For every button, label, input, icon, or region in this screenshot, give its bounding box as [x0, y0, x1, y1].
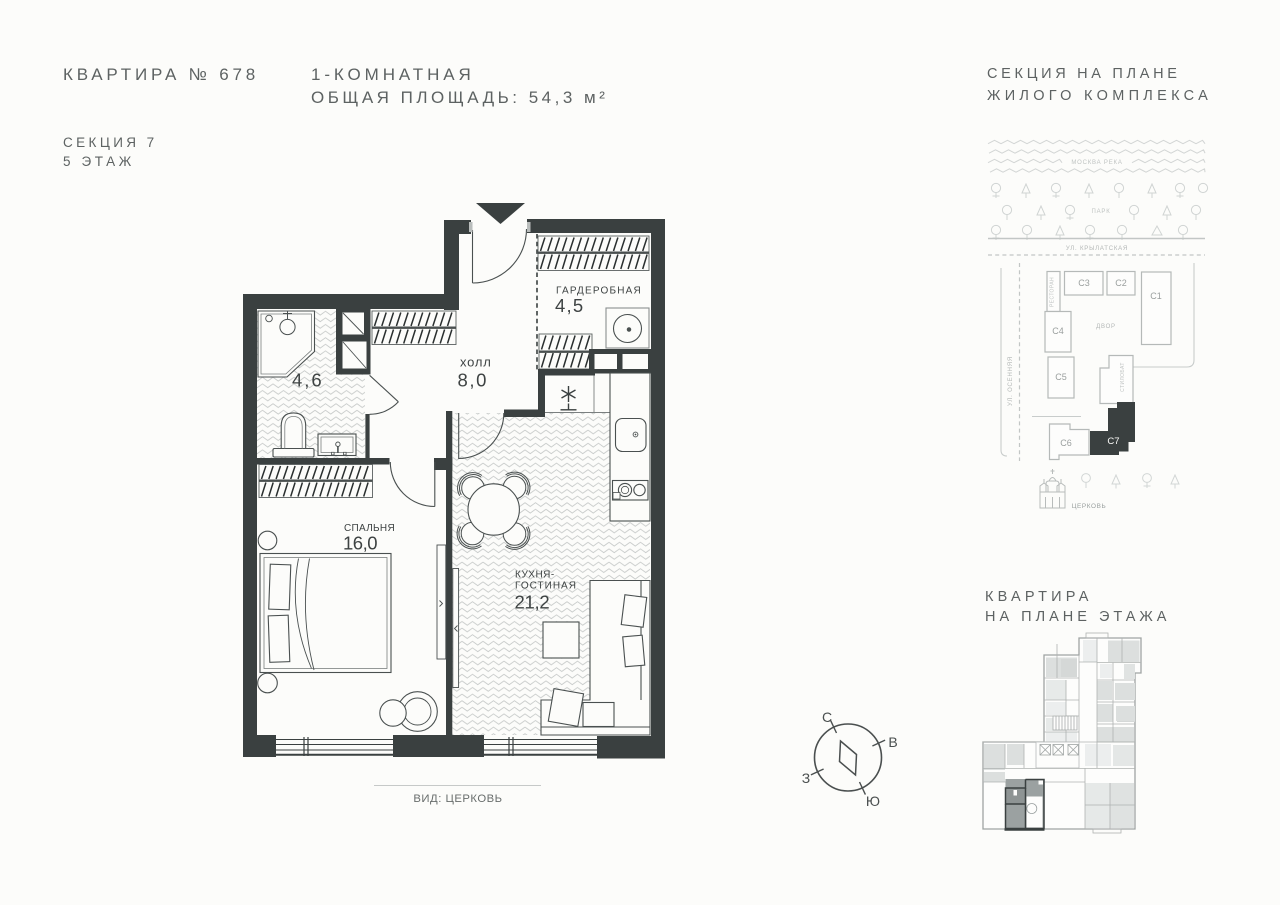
svg-text:ОБЩАЯ ПЛОЩАДЬ: 54,3 м²: ОБЩАЯ ПЛОЩАДЬ: 54,3 м²	[311, 88, 608, 107]
svg-text:С: С	[822, 709, 832, 725]
svg-text:ГОСТИНАЯ: ГОСТИНАЯ	[515, 581, 577, 592]
svg-text:В: В	[888, 734, 897, 750]
svg-text:С3: С3	[1078, 278, 1090, 288]
svg-text:КУХНЯ-: КУХНЯ-	[515, 570, 555, 581]
svg-text:С1: С1	[1150, 291, 1162, 301]
svg-text:5 ЭТАЖ: 5 ЭТАЖ	[63, 154, 135, 169]
svg-text:4,6: 4,6	[292, 370, 324, 391]
svg-text:ЖИЛОГО КОМПЛЕКСА: ЖИЛОГО КОМПЛЕКСА	[987, 88, 1212, 104]
svg-text:С2: С2	[1115, 278, 1127, 288]
svg-text:16,0: 16,0	[343, 533, 377, 554]
svg-text:КВАРТИРА: КВАРТИРА	[985, 589, 1093, 605]
svg-text:РЕСТОРАН: РЕСТОРАН	[1050, 277, 1056, 307]
svg-text:СТИЛОБАТ: СТИЛОБАТ	[1120, 362, 1126, 392]
svg-text:СЕКЦИЯ 7: СЕКЦИЯ 7	[63, 135, 158, 150]
svg-text:ДВОР: ДВОР	[1096, 324, 1116, 330]
svg-text:холл: холл	[460, 355, 492, 370]
svg-text:С4: С4	[1052, 326, 1064, 336]
svg-text:С5: С5	[1055, 372, 1067, 382]
svg-text:СЕКЦИЯ НА ПЛАНЕ: СЕКЦИЯ НА ПЛАНЕ	[987, 66, 1181, 82]
svg-text:НА ПЛАНЕ ЭТАЖА: НА ПЛАНЕ ЭТАЖА	[985, 609, 1170, 625]
svg-text:УЛ. ОСЕННЯЯ: УЛ. ОСЕННЯЯ	[1008, 356, 1014, 406]
svg-text:С6: С6	[1060, 438, 1072, 448]
svg-text:З: З	[802, 770, 810, 786]
svg-text:ВИД: ЦЕРКОВЬ: ВИД: ЦЕРКОВЬ	[413, 793, 502, 805]
svg-text:1-КОМНАТНАЯ: 1-КОМНАТНАЯ	[311, 65, 475, 84]
svg-text:8,0: 8,0	[458, 370, 489, 391]
svg-text:ПАРК: ПАРК	[1091, 209, 1110, 215]
svg-text:Ю: Ю	[866, 793, 880, 809]
svg-text:УЛ. КРЫЛАТСКАЯ: УЛ. КРЫЛАТСКАЯ	[1066, 246, 1128, 252]
svg-text:4,5: 4,5	[555, 295, 584, 316]
svg-text:21,2: 21,2	[515, 592, 550, 613]
svg-text:С7: С7	[1107, 436, 1119, 447]
svg-text:МОСКВА РЕКА: МОСКВА РЕКА	[1071, 160, 1122, 166]
svg-text:ЦЕРКОВЬ: ЦЕРКОВЬ	[1072, 503, 1107, 510]
svg-text:КВАРТИРА № 678: КВАРТИРА № 678	[63, 65, 259, 84]
